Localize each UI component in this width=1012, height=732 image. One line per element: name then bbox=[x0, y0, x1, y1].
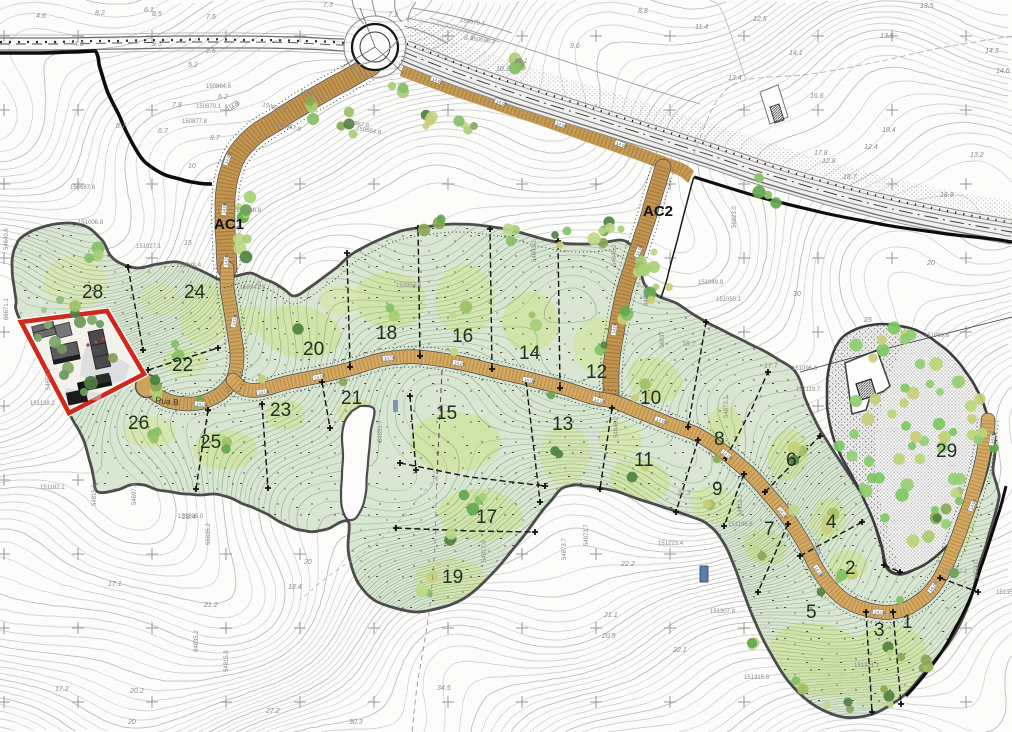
svg-text:6.7: 6.7 bbox=[158, 128, 169, 135]
svg-text:151307.8: 151307.8 bbox=[710, 609, 736, 615]
svg-text:19: 19 bbox=[442, 567, 463, 588]
svg-text:4.8: 4.8 bbox=[74, 41, 84, 48]
svg-text:16.6: 16.6 bbox=[810, 93, 824, 100]
svg-text:56837: 56837 bbox=[660, 331, 666, 348]
svg-text:8: 8 bbox=[714, 429, 725, 450]
svg-text:7.2: 7.2 bbox=[388, 12, 398, 19]
svg-text:16.7: 16.7 bbox=[682, 341, 697, 348]
svg-text:151050.1: 151050.1 bbox=[716, 297, 742, 303]
svg-text:54815.6: 54815.6 bbox=[92, 484, 98, 506]
svg-text:54815.1: 54815.1 bbox=[816, 538, 822, 560]
svg-text:2.6: 2.6 bbox=[205, 48, 216, 55]
svg-text:54655.1: 54655.1 bbox=[46, 368, 52, 390]
svg-text:12: 12 bbox=[586, 362, 607, 383]
svg-text:10: 10 bbox=[640, 388, 661, 409]
svg-text:150687.8: 150687.8 bbox=[70, 185, 96, 191]
svg-text:7.5: 7.5 bbox=[206, 14, 216, 21]
svg-text:54815.8: 54815.8 bbox=[224, 650, 230, 672]
svg-text:17.1: 17.1 bbox=[108, 581, 122, 588]
svg-text:20.5: 20.5 bbox=[601, 633, 616, 640]
svg-text:3: 3 bbox=[874, 620, 885, 641]
svg-text:7.8: 7.8 bbox=[172, 102, 182, 109]
svg-text:11: 11 bbox=[634, 450, 654, 471]
svg-text:54845.2: 54845.2 bbox=[612, 244, 618, 266]
svg-text:150864.6: 150864.6 bbox=[206, 84, 232, 90]
svg-text:30: 30 bbox=[793, 291, 801, 298]
svg-text:56823.0: 56823.0 bbox=[732, 206, 738, 228]
svg-text:25: 25 bbox=[863, 317, 872, 324]
svg-text:9: 9 bbox=[712, 479, 723, 500]
svg-text:151036.8: 151036.8 bbox=[236, 208, 262, 214]
svg-text:12.5: 12.5 bbox=[753, 16, 767, 23]
svg-text:2: 2 bbox=[845, 558, 856, 579]
svg-text:14.1: 14.1 bbox=[789, 50, 803, 57]
svg-text:6424.0: 6424.0 bbox=[974, 559, 980, 578]
svg-text:14.6: 14.6 bbox=[996, 68, 1010, 75]
svg-text:151321.1: 151321.1 bbox=[854, 663, 880, 669]
svg-text:22.2: 22.2 bbox=[620, 561, 635, 568]
svg-text:8.2: 8.2 bbox=[95, 10, 105, 17]
svg-text:151208.0: 151208.0 bbox=[178, 514, 204, 520]
svg-text:151223.4: 151223.4 bbox=[658, 541, 684, 547]
svg-text:14.00: 14.00 bbox=[224, 254, 229, 266]
svg-text:20: 20 bbox=[127, 719, 136, 726]
svg-text:151138.2: 151138.2 bbox=[30, 401, 55, 407]
svg-text:29: 29 bbox=[936, 441, 957, 462]
svg-text:54873.1: 54873.1 bbox=[724, 396, 730, 418]
svg-text:19.4: 19.4 bbox=[882, 127, 896, 134]
svg-text:15: 15 bbox=[436, 403, 457, 424]
svg-text:7: 7 bbox=[764, 519, 775, 540]
svg-text:6: 6 bbox=[786, 450, 797, 471]
svg-text:10.1: 10.1 bbox=[514, 58, 528, 65]
svg-text:54640.6: 54640.6 bbox=[4, 228, 10, 250]
svg-text:150877.8: 150877.8 bbox=[182, 119, 208, 125]
svg-text:54873.7: 54873.7 bbox=[584, 524, 590, 546]
svg-text:54818.1: 54818.1 bbox=[738, 494, 744, 516]
svg-text:8.7: 8.7 bbox=[210, 135, 221, 142]
svg-text:12.8: 12.8 bbox=[822, 158, 836, 165]
svg-text:4: 4 bbox=[826, 512, 837, 533]
svg-text:13.5: 13.5 bbox=[880, 33, 894, 40]
svg-text:1: 1 bbox=[902, 612, 913, 633]
svg-text:8.8: 8.8 bbox=[638, 8, 648, 15]
svg-text:4.6: 4.6 bbox=[36, 13, 46, 20]
svg-text:6.1: 6.1 bbox=[144, 7, 154, 14]
svg-text:14.3: 14.3 bbox=[985, 48, 999, 55]
svg-text:22: 22 bbox=[172, 355, 193, 376]
svg-text:10: 10 bbox=[188, 163, 196, 170]
svg-text:18.4: 18.4 bbox=[288, 584, 302, 591]
svg-text:84835.2: 84835.2 bbox=[194, 630, 200, 652]
svg-text:23: 23 bbox=[270, 400, 291, 421]
svg-text:17.7: 17.7 bbox=[764, 363, 779, 370]
svg-text:14.00: 14.00 bbox=[874, 609, 886, 615]
svg-text:18.8: 18.8 bbox=[940, 192, 954, 199]
svg-text:56835.2: 56835.2 bbox=[206, 523, 212, 545]
svg-text:151119.7: 151119.7 bbox=[796, 387, 821, 393]
svg-text:9.3: 9.3 bbox=[152, 41, 162, 48]
svg-text:54843.1: 54843.1 bbox=[532, 240, 538, 262]
svg-text:17.2: 17.2 bbox=[55, 686, 69, 693]
svg-text:54873.7: 54873.7 bbox=[562, 538, 568, 560]
svg-text:54697.4: 54697.4 bbox=[132, 483, 138, 505]
svg-text:14.00: 14.00 bbox=[221, 202, 227, 214]
svg-text:22.1: 22.1 bbox=[672, 647, 687, 654]
svg-text:30.3: 30.3 bbox=[349, 719, 363, 726]
svg-text:151069.8: 151069.8 bbox=[924, 333, 950, 339]
svg-text:17.8: 17.8 bbox=[814, 150, 828, 157]
svg-text:151315.8: 151315.8 bbox=[744, 675, 770, 681]
svg-text:20: 20 bbox=[303, 559, 312, 566]
svg-text:7.3: 7.3 bbox=[323, 2, 333, 9]
svg-text:151242.2: 151242.2 bbox=[942, 569, 968, 575]
svg-text:151027.1: 151027.1 bbox=[136, 244, 162, 250]
svg-text:26: 26 bbox=[128, 413, 149, 434]
svg-text:28: 28 bbox=[82, 282, 103, 303]
svg-text:150941.5: 150941.5 bbox=[240, 285, 266, 291]
svg-text:151357.: 151357. bbox=[996, 590, 1012, 596]
svg-text:8.7: 8.7 bbox=[116, 123, 127, 130]
svg-text:84812.2: 84812.2 bbox=[644, 284, 650, 306]
svg-text:151006.8: 151006.8 bbox=[78, 220, 104, 226]
svg-text:16: 16 bbox=[452, 326, 473, 347]
svg-text:6.2: 6.2 bbox=[218, 94, 228, 101]
svg-text:13: 13 bbox=[552, 414, 573, 435]
svg-text:18.7: 18.7 bbox=[843, 174, 858, 181]
svg-text:17: 17 bbox=[476, 507, 497, 528]
svg-text:21.3: 21.3 bbox=[676, 490, 691, 497]
svg-text:54845.2: 54845.2 bbox=[614, 416, 620, 438]
svg-text:20: 20 bbox=[926, 260, 935, 267]
svg-text:18: 18 bbox=[376, 323, 397, 344]
svg-text:14.00: 14.00 bbox=[384, 355, 396, 361]
svg-text:151096.0: 151096.0 bbox=[792, 366, 818, 372]
svg-text:10.2: 10.2 bbox=[496, 66, 510, 73]
svg-text:14: 14 bbox=[519, 343, 541, 364]
svg-text:150870.1: 150870.1 bbox=[196, 104, 222, 110]
svg-text:13.4: 13.4 bbox=[728, 75, 742, 82]
svg-text:54817.9: 54817.9 bbox=[482, 540, 488, 562]
svg-text:34.5: 34.5 bbox=[437, 685, 451, 692]
svg-text:14.00: 14.00 bbox=[196, 401, 208, 407]
svg-text:66671.1: 66671.1 bbox=[4, 298, 10, 320]
svg-text:20.2: 20.2 bbox=[129, 688, 144, 695]
svg-text:20: 20 bbox=[303, 339, 324, 360]
svg-text:27.2: 27.2 bbox=[265, 708, 280, 715]
svg-text:5: 5 bbox=[806, 602, 817, 623]
svg-text:12.4: 12.4 bbox=[864, 144, 878, 151]
svg-text:21.2: 21.2 bbox=[203, 602, 218, 609]
svg-text:13.2: 13.2 bbox=[970, 152, 984, 159]
svg-text:13.5: 13.5 bbox=[920, 3, 934, 10]
svg-text:25: 25 bbox=[200, 432, 221, 453]
svg-text:151049.9: 151049.9 bbox=[698, 280, 724, 286]
svg-text:151196.8: 151196.8 bbox=[728, 522, 753, 528]
svg-text:9.6: 9.6 bbox=[570, 43, 580, 50]
svg-text:24: 24 bbox=[184, 282, 206, 303]
svg-text:15: 15 bbox=[184, 240, 192, 247]
svg-text:11.4: 11.4 bbox=[695, 24, 708, 31]
svg-text:5.2: 5.2 bbox=[188, 62, 198, 69]
svg-text:AC1: AC1 bbox=[214, 216, 244, 233]
svg-text:54851.7: 54851.7 bbox=[378, 420, 384, 442]
svg-text:AC2: AC2 bbox=[643, 203, 673, 220]
svg-text:151182.1: 151182.1 bbox=[40, 485, 65, 491]
svg-text:21.1: 21.1 bbox=[603, 612, 618, 619]
svg-text:151038.4: 151038.4 bbox=[176, 263, 202, 269]
svg-text:150954.6: 150954.6 bbox=[396, 283, 422, 289]
svg-text:21: 21 bbox=[341, 388, 362, 409]
